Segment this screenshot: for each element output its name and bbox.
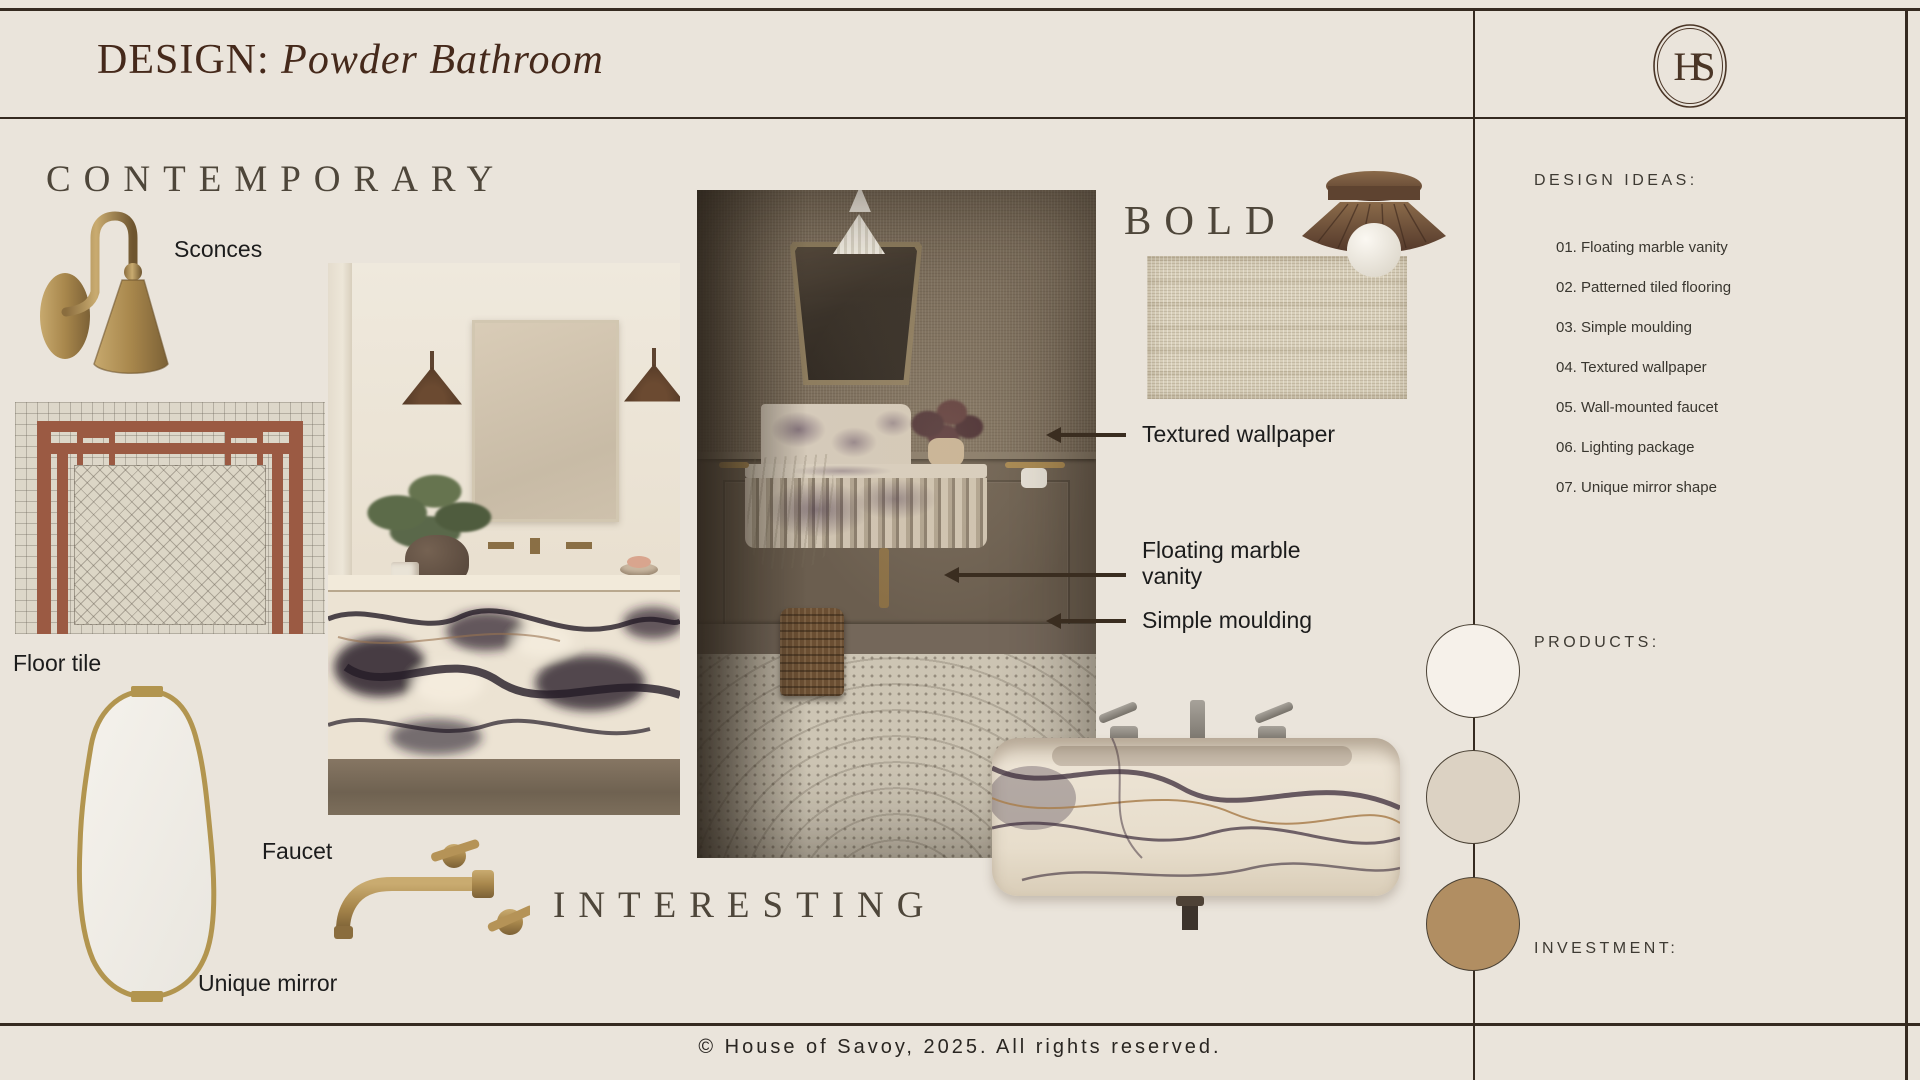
header-divider-line	[0, 117, 1908, 119]
annotation-arrowhead	[1046, 613, 1061, 629]
design-idea-item: 05. Wall-mounted faucet	[1556, 400, 1731, 415]
label-floor-tile: Floor tile	[13, 650, 101, 677]
annotation-arrow	[1060, 433, 1126, 437]
photo1-marble-vanity	[328, 575, 680, 761]
ceiling-light-image	[1288, 166, 1452, 282]
moodboard-canvas: DESIGN: Powder Bathroom HS CONTEMPORARY …	[0, 0, 1920, 1080]
design-idea-item: 03. Simple moulding	[1556, 320, 1731, 335]
footer-divider-line	[0, 1023, 1920, 1026]
product-swatch-camel	[1426, 877, 1520, 971]
annotation-arrowhead	[944, 567, 959, 583]
top-border-line	[0, 8, 1920, 11]
design-idea-item: 02. Patterned tiled flooring	[1556, 280, 1731, 295]
sink-handle-left-lever	[1098, 701, 1138, 724]
sink-drain-pipe	[1182, 896, 1198, 930]
design-idea-item: 04. Textured wallpaper	[1556, 360, 1731, 375]
label-unique-mirror: Unique mirror	[198, 970, 337, 997]
heading-interesting: INTERESTING	[553, 884, 936, 927]
label-sconces: Sconces	[174, 236, 262, 263]
copyright-text: © House of Savoy, 2025. All rights reser…	[0, 1036, 1920, 1059]
heading-contemporary: CONTEMPORARY	[46, 158, 506, 201]
design-idea-item: 01. Floating marble vanity	[1556, 240, 1731, 255]
photo1-sconce-right	[624, 362, 680, 408]
product-swatch-beige	[1426, 750, 1520, 844]
annotation-arrow	[1060, 619, 1126, 623]
annotation-floating-marble-vanity: Floating marble vanity	[1142, 537, 1338, 590]
design-ideas-title: DESIGN IDEAS:	[1534, 172, 1698, 190]
investment-title: INVESTMENT:	[1534, 940, 1678, 958]
tile-border-bar	[37, 421, 51, 634]
unique-mirror-image	[55, 684, 239, 1004]
annotation-simple-moulding: Simple moulding	[1142, 607, 1312, 633]
right-border-line	[1905, 8, 1908, 1080]
house-of-savoy-logo-icon: HS	[1650, 22, 1730, 110]
page-title: DESIGN: Powder Bathroom	[97, 36, 604, 84]
label-faucet: Faucet	[262, 838, 332, 865]
annotation-arrowhead	[1046, 427, 1061, 443]
annotation-arrow	[958, 573, 1126, 577]
brass-faucet-image	[326, 834, 530, 954]
svg-text:HS: HS	[1673, 44, 1713, 89]
product-swatch-cream	[1426, 624, 1520, 718]
tile-border-bar	[289, 421, 303, 634]
photo1-under-vanity	[328, 759, 680, 815]
page-title-name: Powder Bathroom	[281, 37, 604, 83]
design-idea-item: 06. Lighting package	[1556, 440, 1731, 455]
annotation-textured-wallpaper: Textured wallpaper	[1142, 421, 1335, 447]
floor-tile-image	[15, 402, 325, 634]
contemporary-bathroom-photo	[328, 263, 680, 815]
design-ideas-list: 01. Floating marble vanity 02. Patterned…	[1556, 240, 1731, 520]
heading-bold: BOLD	[1124, 196, 1288, 244]
sink-marble-body	[992, 738, 1400, 896]
tile-center-field	[74, 465, 266, 625]
design-idea-item: 07. Unique mirror shape	[1556, 480, 1731, 495]
sink-handle-right-lever	[1254, 701, 1294, 724]
tile-border-bar	[37, 421, 304, 433]
brass-sconce-image	[38, 208, 172, 392]
page-title-prefix: DESIGN:	[97, 37, 270, 83]
marble-sink-image	[992, 700, 1406, 930]
tile-border-bar	[57, 453, 68, 634]
products-title: PRODUCTS:	[1534, 634, 1660, 652]
tile-border-bar	[272, 453, 283, 634]
photo1-sconce-left	[402, 365, 462, 411]
photo1-wall-faucet	[488, 538, 592, 554]
